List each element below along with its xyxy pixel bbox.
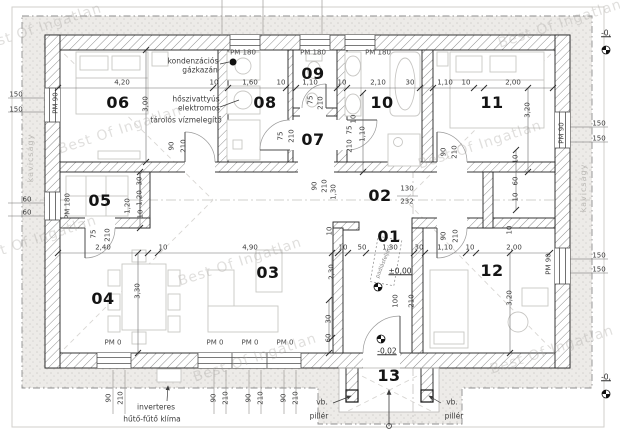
window-bottom-04 [97, 353, 131, 368]
ac-outdoor-unit [157, 369, 181, 382]
floor-plan-page: 4,20101,60101,10102,10301,10102,002,4010… [0, 0, 620, 432]
porch-pillar-right [421, 390, 433, 402]
window-left-06 [45, 88, 60, 122]
wardrobe-room-05 [66, 176, 128, 216]
window-bottom-03 [198, 353, 301, 368]
window-top-10 [345, 35, 375, 50]
window-right-12 [555, 248, 570, 284]
floor-plan-drawing [0, 0, 620, 432]
shower [388, 134, 420, 166]
window-top-09 [300, 35, 330, 50]
porch-pillar-left [346, 390, 358, 402]
boiler-dot [230, 59, 237, 66]
window-top-08 [230, 35, 260, 50]
window-left-05 [45, 192, 60, 220]
utility-room-08 [227, 52, 260, 160]
window-right-11 [555, 112, 570, 148]
